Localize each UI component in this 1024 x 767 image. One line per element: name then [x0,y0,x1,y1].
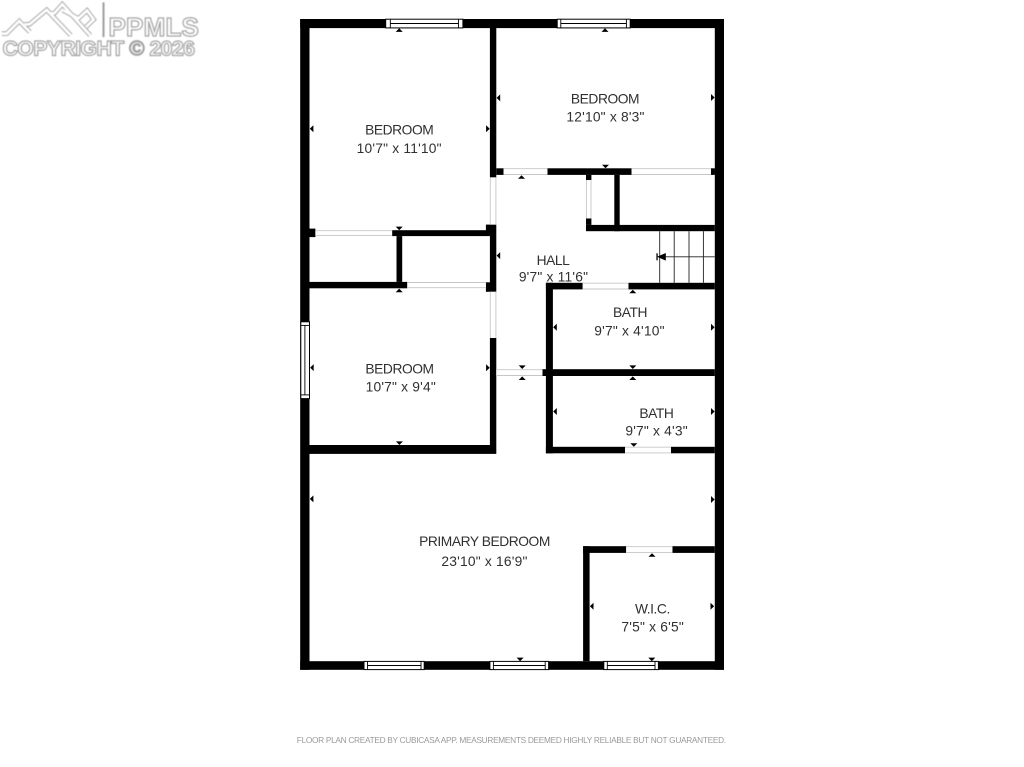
svg-text:7'5" x 6'5": 7'5" x 6'5" [621,619,684,634]
svg-text:BEDROOM: BEDROOM [365,362,433,377]
svg-text:BATH: BATH [613,305,647,320]
svg-text:23'10" x 16'9": 23'10" x 16'9" [441,554,527,569]
svg-text:BATH: BATH [639,406,673,421]
svg-text:BEDROOM: BEDROOM [571,92,639,107]
svg-text:9'7" x 4'10": 9'7" x 4'10" [594,323,664,338]
svg-text:9'7" x 11'6": 9'7" x 11'6" [519,269,588,284]
svg-text:FLOOR PLAN CREATED BY CUBICASA: FLOOR PLAN CREATED BY CUBICASA APP. MEAS… [297,735,726,745]
svg-text:12'10" x 8'3": 12'10" x 8'3" [566,110,644,125]
svg-text:HALL: HALL [537,253,570,268]
svg-text:PRIMARY BEDROOM: PRIMARY BEDROOM [419,534,550,549]
svg-text:BEDROOM: BEDROOM [365,123,433,138]
svg-text:COPYRIGHT © 2026: COPYRIGHT © 2026 [3,37,196,61]
svg-text:10'7" x 11'10": 10'7" x 11'10" [357,141,442,156]
svg-text:9'7" x 4'3": 9'7" x 4'3" [625,424,688,439]
svg-text:W.I.C.: W.I.C. [635,601,670,616]
svg-text:10'7" x 9'4": 10'7" x 9'4" [366,380,436,395]
